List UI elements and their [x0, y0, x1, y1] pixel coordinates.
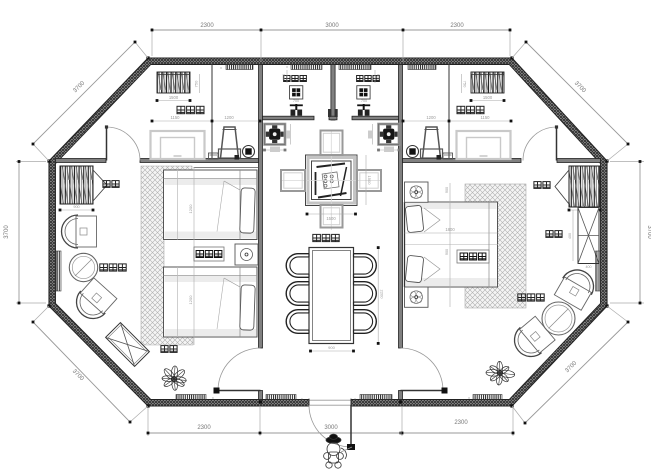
svg-text:2300: 2300	[450, 23, 464, 29]
svg-text:3000: 3000	[325, 23, 339, 29]
svg-text:3700: 3700	[646, 225, 651, 239]
svg-text:900: 900	[445, 187, 449, 193]
svg-text:750: 750	[194, 80, 199, 87]
svg-text:1200: 1200	[224, 115, 234, 120]
svg-text:600: 600	[282, 74, 286, 80]
svg-text:1500: 1500	[326, 216, 336, 221]
svg-text:1500: 1500	[483, 95, 493, 100]
svg-text:3000: 3000	[324, 425, 338, 431]
svg-text:1200: 1200	[188, 204, 193, 214]
svg-text:700: 700	[293, 99, 299, 103]
svg-text:2300: 2300	[197, 425, 211, 431]
svg-text:900: 900	[328, 345, 335, 350]
svg-text:1150: 1150	[170, 115, 180, 120]
svg-text:1200: 1200	[188, 295, 193, 305]
svg-text:750: 750	[463, 81, 468, 88]
svg-text:700: 700	[361, 99, 367, 103]
svg-text:≈: ≈	[468, 396, 470, 400]
svg-text:600: 600	[376, 74, 380, 80]
svg-text:≈: ≈	[286, 65, 288, 69]
svg-text:1500: 1500	[169, 95, 179, 100]
svg-text:1200: 1200	[426, 115, 436, 120]
svg-text:2200: 2200	[380, 290, 385, 300]
svg-text:2300: 2300	[200, 23, 214, 29]
svg-text:400: 400	[568, 233, 572, 239]
svg-text:3700: 3700	[4, 225, 10, 239]
svg-text:≈: ≈	[301, 397, 303, 401]
svg-text:2300: 2300	[454, 420, 468, 426]
svg-text:1150: 1150	[480, 115, 490, 120]
svg-text:1800: 1800	[445, 227, 455, 232]
svg-text:400: 400	[586, 265, 592, 269]
svg-text:900: 900	[445, 249, 449, 255]
svg-text:≈: ≈	[220, 66, 222, 70]
svg-text:≈: ≈	[354, 397, 356, 401]
svg-text:900: 900	[73, 205, 79, 209]
svg-text:1500: 1500	[367, 176, 372, 186]
svg-text:≈: ≈	[212, 396, 214, 400]
